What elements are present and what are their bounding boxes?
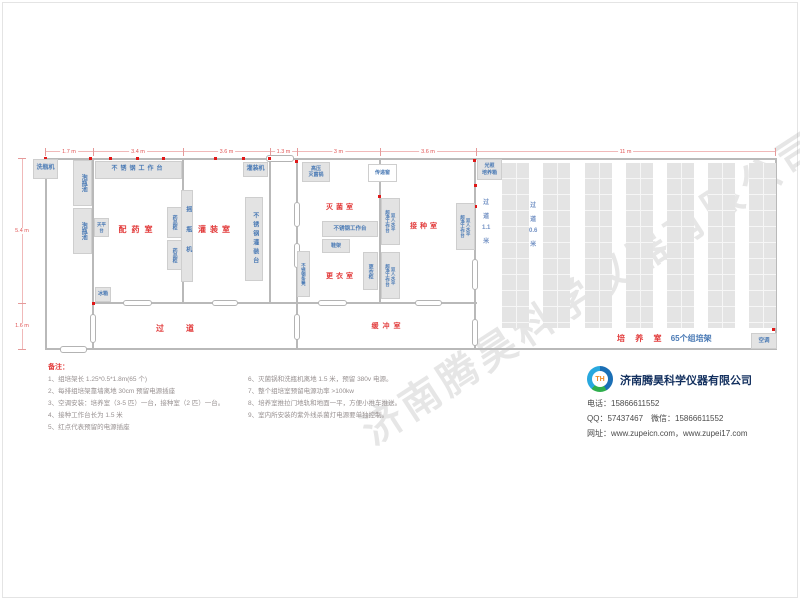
equipment-wardrobe: 更衣柜: [363, 252, 378, 290]
sliding-door: [472, 319, 478, 346]
dimension-label: 3.6 m: [218, 149, 236, 155]
equipment-medicine-cabinet: 药品柜: [167, 240, 182, 270]
dimension-label: 5.4 m: [13, 228, 31, 234]
corridor-char: 道: [483, 211, 489, 220]
dimension-tick: [18, 303, 26, 304]
equipment-clean-bench: 双人水平 超净工作台: [381, 198, 400, 245]
dimension-label: 3.6 m: [419, 149, 437, 155]
sliding-door: [60, 346, 87, 353]
equipment-filling-machine: 灌装机: [243, 162, 268, 177]
room-label-culture: 培 养 室 65个组培架: [617, 333, 712, 344]
company-qq-wechat: QQ：57437467 微信：15866611552: [587, 411, 748, 426]
dimension-tick: [476, 148, 477, 156]
note-item: 4、接种工作台长为 1.5 米: [48, 410, 243, 422]
sliding-door: [294, 314, 300, 340]
dimension-label: 3 m: [332, 149, 345, 155]
dimension-label: 1.6 m: [13, 323, 31, 329]
power-outlet-dot: [109, 157, 112, 160]
note-item: 7、整个组培室预留电源功率 >100kw: [248, 386, 478, 398]
note-item: 8、培养室推拉门地轨和地面一平，方便小推车推送。: [248, 398, 478, 410]
notes-column-1: 1、组培架长 1.25*0.5*1.8m(65 个) 2、每排组培架靠墙离地 3…: [48, 374, 243, 434]
corridor-char: 米: [483, 236, 489, 245]
equipment-ss-bench: 不锈钢条凳: [297, 251, 310, 297]
dimension-tick: [18, 158, 26, 159]
note-item: 1、组培架长 1.25*0.5*1.8m(65 个): [48, 374, 243, 386]
dimension-tick: [18, 349, 26, 350]
culture-room-name: 培 养 室: [617, 334, 665, 343]
sliding-door: [123, 300, 152, 306]
rack-column: [502, 163, 529, 328]
equipment-ss-workbench: 不锈钢工作台: [95, 161, 182, 179]
equipment-autoclave: 高压 灭菌锅: [302, 162, 330, 182]
room-label-jiezhong: 接种室: [410, 221, 440, 231]
sliding-door: [415, 300, 442, 306]
note-item: 6、灭菌锅和洗瓶机离地 1.5 米，预留 380v 电源。: [248, 374, 478, 386]
culture-rack-count: 65个组培架: [671, 334, 712, 343]
rack-column: [626, 163, 653, 328]
corridor-char: 过: [530, 200, 536, 209]
company-website: 网址：www.zupeicn.com，www.zupei17.com: [587, 426, 748, 441]
dimension-label: 11 m: [618, 149, 634, 155]
wall: [45, 158, 47, 350]
equipment-clean-bench: 双人水平 超净工作台: [456, 203, 475, 250]
equipment-bottle-washer: 洗瓶机: [33, 159, 58, 179]
room-label-guodao: 过道: [156, 323, 216, 334]
equipment-fridge: 冰箱: [95, 287, 111, 302]
sliding-door: [318, 300, 347, 306]
equipment-light-incubator: 光照 培养箱: [477, 159, 502, 180]
wall: [45, 158, 777, 160]
dimension-label: 1.3 m: [275, 149, 293, 155]
company-logo-icon: TH: [587, 366, 613, 392]
equipment-soak-pool: 泡瓶池: [73, 208, 92, 254]
power-outlet-dot: [268, 157, 271, 160]
equipment-air-conditioner: 空调: [751, 333, 777, 349]
corridor-char: 道: [530, 214, 536, 223]
power-outlet-dot: [242, 157, 245, 160]
logo-monogram: TH: [592, 371, 608, 387]
sliding-door: [472, 259, 478, 290]
equipment-bottle-shaker: 摇瓶机: [181, 190, 193, 282]
notes-block: 备注： 1、组培架长 1.25*0.5*1.8m(65 个) 2、每排组培架靠墙…: [48, 362, 69, 374]
dimension-tick: [270, 148, 271, 156]
floor-plan-page: 济南腾昊科学仪器有限公司 培 养 室 65个组培架 洗瓶机泡瓶池泡瓶池不锈钢工作…: [0, 0, 800, 600]
dimension-tick: [380, 148, 381, 156]
rack-corridor-label: 过道0.6米: [529, 200, 537, 248]
floor-plan: 济南腾昊科学仪器有限公司 培 养 室 65个组培架 洗瓶机泡瓶池泡瓶池不锈钢工作…: [0, 0, 800, 600]
room-label-gengyi: 更衣室: [326, 271, 356, 281]
dimension-tick: [93, 148, 94, 156]
corridor-char: 米: [530, 239, 536, 248]
room-label-peiyao: 配药室: [119, 224, 158, 235]
equipment-ss-workbench: 不锈钢工作台: [322, 221, 378, 237]
dimension-label: 1.7 m: [60, 149, 78, 155]
room-label-miejun: 灭菌室: [326, 202, 356, 212]
power-outlet-dot: [162, 157, 165, 160]
note-item: 5、红点代表预留的电源插座: [48, 422, 243, 434]
note-item: 2、每排组培架靠墙离地 30cm 预留电源插座: [48, 386, 243, 398]
equipment-medicine-cabinet: 药品柜: [167, 207, 182, 238]
rack-column: [708, 163, 735, 328]
equipment-balance-table: 天平台: [94, 218, 109, 237]
rack-column: [749, 163, 776, 328]
dimension-tick: [775, 148, 776, 156]
notes-column-2: 6、灭菌锅和洗瓶机离地 1.5 米，预留 380v 电源。 7、整个组培室预留电…: [248, 374, 478, 422]
company-phone: 电话：15866611552: [587, 396, 748, 411]
rack-column: [585, 163, 612, 328]
power-outlet-dot: [136, 157, 139, 160]
equipment-ss-filling-table: 不锈钢灌装台: [245, 197, 263, 281]
power-outlet-dot: [214, 157, 217, 160]
room-label-huanchong: 缓冲室: [372, 321, 405, 331]
note-item: 3、空调安装：培养室（3-5 匹）一台，接种室（2 匹）一台。: [48, 398, 243, 410]
power-outlet-dot: [772, 328, 775, 331]
sliding-door: [294, 202, 300, 227]
equipment-pass-window: 传递窗: [368, 164, 397, 182]
corridor-char: 过: [483, 197, 489, 206]
wall: [45, 348, 777, 350]
power-outlet-dot: [295, 160, 298, 163]
company-name: 济南腾昊科学仪器有限公司: [620, 372, 752, 388]
notes-header: 备注：: [48, 362, 69, 374]
equipment-shoe-rack: 鞋架: [322, 239, 350, 253]
rack-column: [667, 163, 694, 328]
room-label-guanzhuang: 灌装室: [198, 224, 234, 235]
power-outlet-dot: [473, 159, 476, 162]
note-item: 9、室内所安装的紫外线杀菌灯电源要单独控制。: [248, 410, 478, 422]
power-outlet-dot: [474, 184, 477, 187]
dimension-tick: [297, 148, 298, 156]
power-outlet-dot: [92, 302, 95, 305]
dimension-tick: [183, 148, 184, 156]
corridor-char: 0.6: [529, 228, 537, 234]
equipment-clean-bench: 双人水平 超净工作台: [381, 252, 400, 299]
corridor-char: 1.1: [482, 225, 490, 231]
dimension-tick: [45, 148, 46, 156]
wall: [269, 158, 271, 304]
equipment-soak-pool: 泡瓶池: [73, 160, 92, 206]
sliding-door: [212, 300, 238, 306]
rack-column: [543, 163, 570, 328]
sliding-door: [90, 314, 96, 343]
dimension-label: 3.4 m: [129, 149, 147, 155]
company-contact: 电话：15866611552 QQ：57437467 微信：1586661155…: [587, 396, 748, 441]
rack-corridor-label: 过道1.1米: [482, 197, 490, 245]
